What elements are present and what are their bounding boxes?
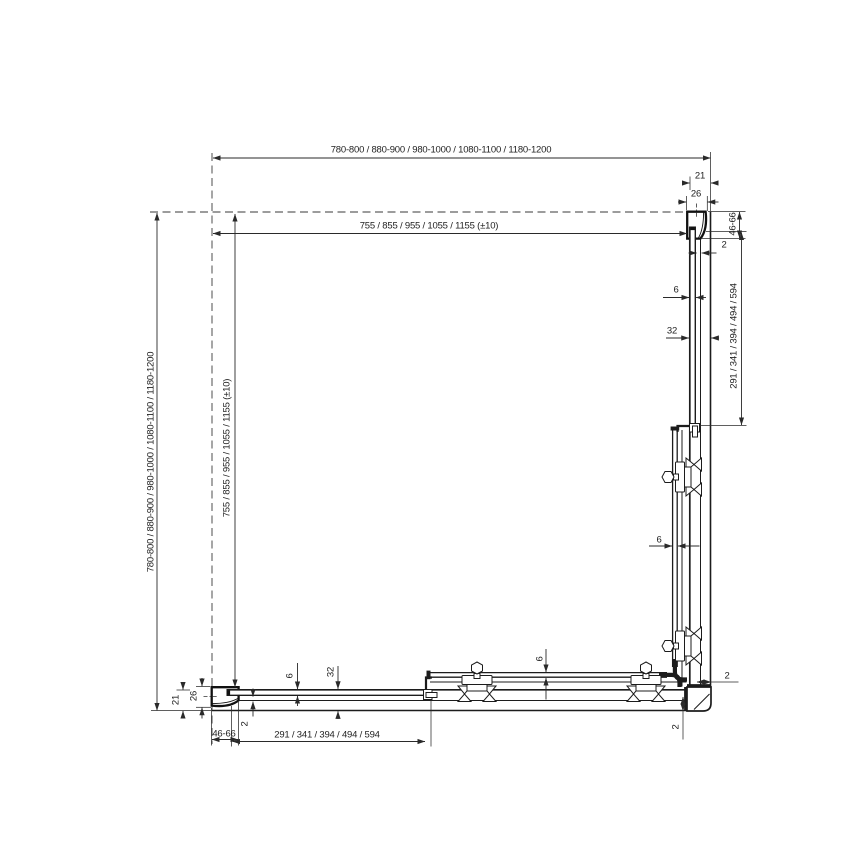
drawing-canvas <box>0 0 868 868</box>
extension-lines <box>151 152 747 747</box>
roller-carrier <box>662 458 702 496</box>
corner-connector <box>659 659 711 711</box>
dim-label-left-2: 2 <box>240 721 250 726</box>
dim-label-bottom-segments: 291 / 341 / 394 / 494 / 594 <box>274 730 380 740</box>
roller-carrier <box>662 627 702 665</box>
dim-label-bottom-32: 32 <box>326 667 336 677</box>
dim-label-left-26: 26 <box>189 691 199 701</box>
roller-carrier <box>458 662 496 702</box>
dim-label-glass-depth: 755 / 855 / 955 / 1055 / 1155 (±10) <box>222 379 232 518</box>
bottom-assembly <box>212 671 687 711</box>
dim-label-right-segments: 291 / 341 / 394 / 494 / 594 <box>729 283 739 389</box>
dim-label-bottom-6: 6 <box>285 673 295 678</box>
dimension-lines <box>157 158 742 742</box>
right-assembly <box>671 212 711 687</box>
roller-carrier <box>627 662 665 702</box>
dim-label-bottom-door-6: 6 <box>535 656 545 661</box>
door-elbow-bottom <box>659 675 680 687</box>
dim-label-right-6: 6 <box>673 285 678 295</box>
dim-label-overall-width: 780-800 / 880-900 / 980-1000 / 1080-1100… <box>331 145 552 155</box>
dim-label-overall-depth: 780-800 / 880-900 / 980-1000 / 1080-1100… <box>146 352 156 573</box>
dim-label-right-door-6: 6 <box>656 535 661 545</box>
dim-label-top-2: 2 <box>721 240 726 250</box>
dim-label-left-46-66: 46-66 <box>212 729 235 739</box>
door-rollers <box>458 458 702 702</box>
dim-label-top-46-66: 46-66 <box>728 212 738 235</box>
dim-label-left-21: 21 <box>171 695 181 705</box>
dim-label-top-26: 26 <box>691 189 701 199</box>
dim-label-glass-width: 755 / 855 / 955 / 1055 / 1155 (±10) <box>360 221 499 231</box>
dim-label-right-32: 32 <box>667 326 677 336</box>
dim-label-corner-2-horizontal: 2 <box>724 671 729 681</box>
shower-enclosure-technical-drawing: 780-800 / 880-900 / 980-1000 / 1080-1100… <box>0 0 868 868</box>
dim-label-top-21: 21 <box>695 171 705 181</box>
dim-label-corner-2-vertical: 2 <box>671 724 681 729</box>
